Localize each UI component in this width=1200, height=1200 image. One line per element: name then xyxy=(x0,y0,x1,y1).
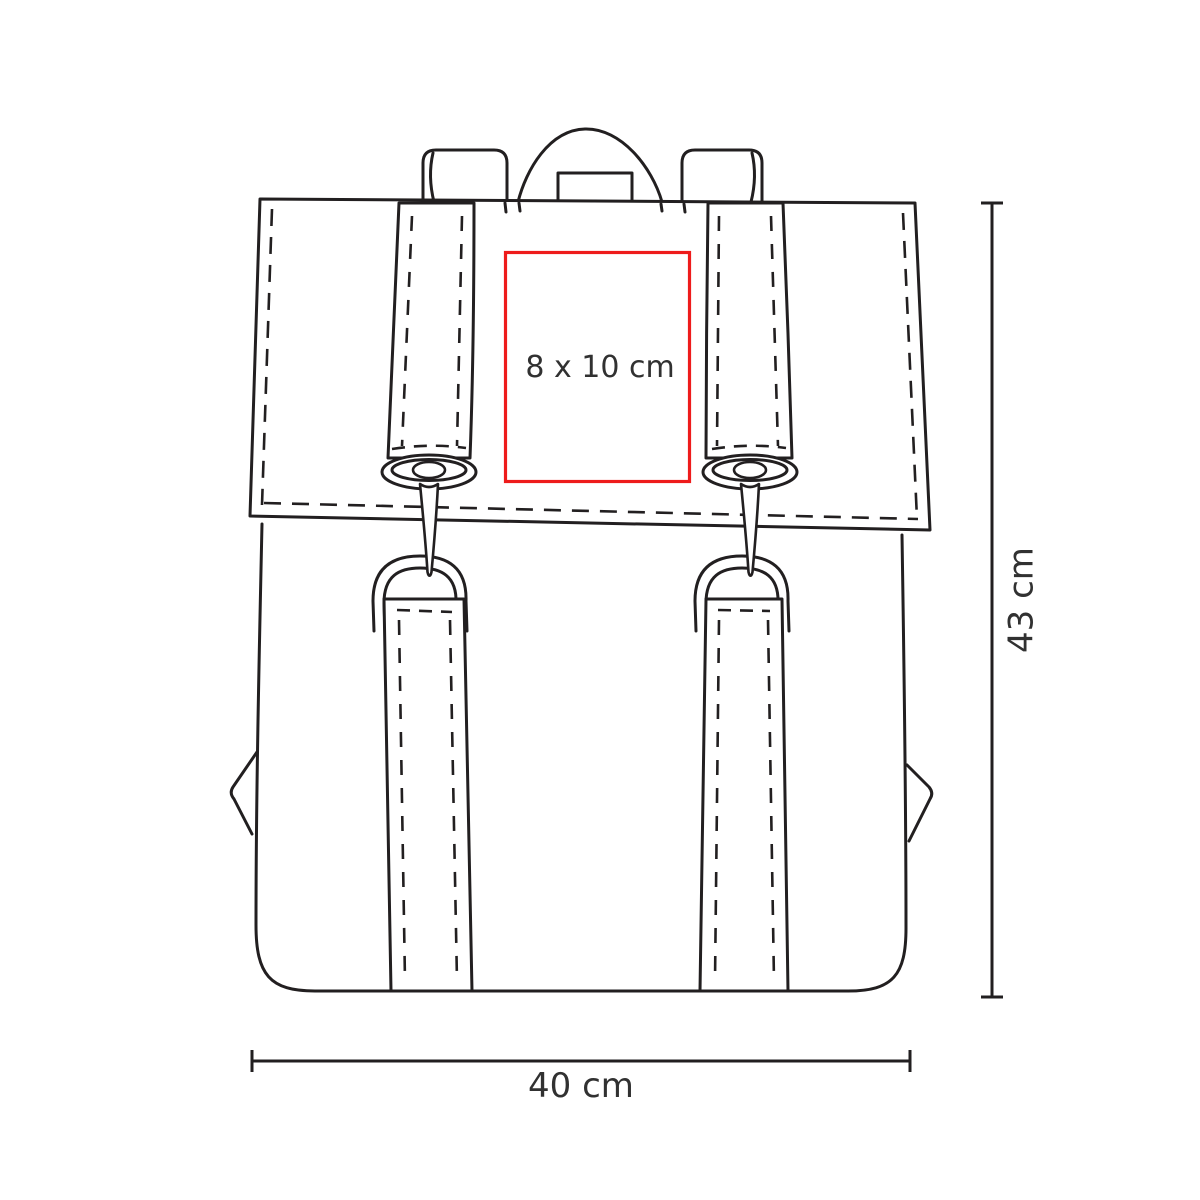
right-top-loop xyxy=(682,150,762,202)
width-dimension: 40 cm xyxy=(252,1050,910,1106)
right-buckle xyxy=(703,455,797,489)
height-dimension-label: 43 cm xyxy=(1002,547,1042,653)
backpack-body xyxy=(231,524,932,991)
left-flap-strap xyxy=(388,203,474,458)
print-area-label: 8 x 10 cm xyxy=(525,350,674,385)
width-dimension-label: 40 cm xyxy=(528,1066,634,1106)
left-top-loop xyxy=(423,150,507,202)
right-lower-strap xyxy=(700,599,788,991)
diagram-canvas: 8 x 10 cm 43 cm 40 cm xyxy=(0,0,1200,1200)
right-side-tab xyxy=(907,765,932,841)
left-lower-strap xyxy=(384,599,472,991)
backpack-top-handle xyxy=(518,129,662,202)
backpack-spec-diagram: 8 x 10 cm 43 cm 40 cm xyxy=(0,0,1200,1200)
height-dimension: 43 cm xyxy=(981,203,1042,997)
left-side-tab xyxy=(231,752,257,834)
left-buckle xyxy=(382,455,476,489)
right-flap-strap xyxy=(706,203,792,458)
